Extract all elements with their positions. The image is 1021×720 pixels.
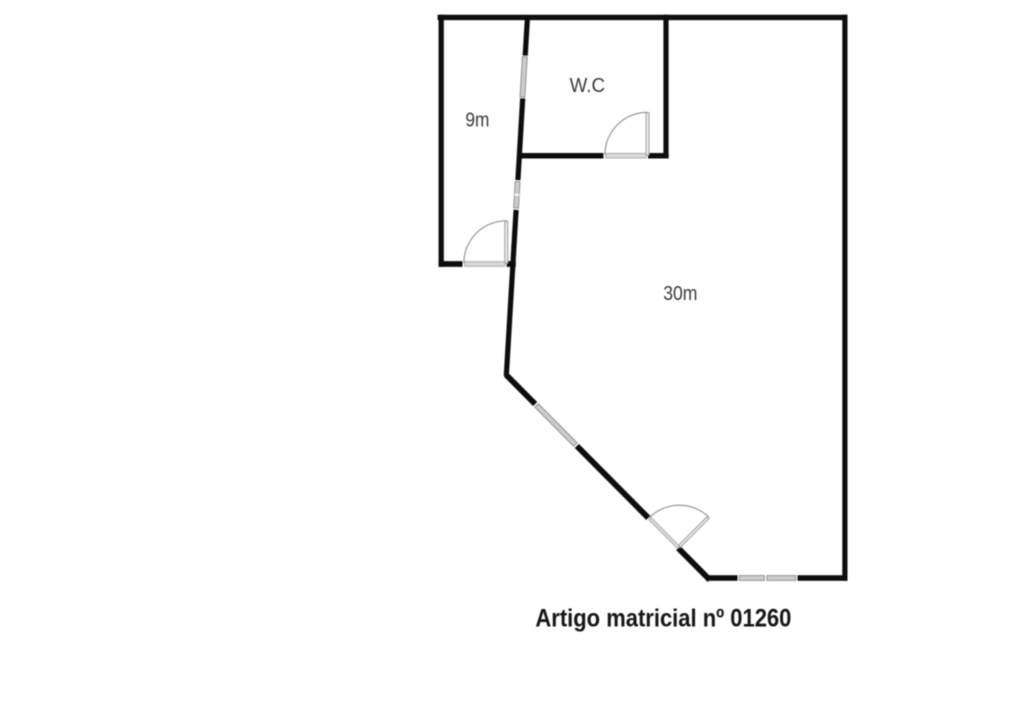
svg-text:9m: 9m bbox=[465, 108, 489, 131]
svg-text:Artigo matricial nº 01260: Artigo matricial nº 01260 bbox=[535, 604, 791, 632]
svg-text:W.C: W.C bbox=[570, 75, 605, 97]
svg-text:30m: 30m bbox=[663, 282, 697, 305]
